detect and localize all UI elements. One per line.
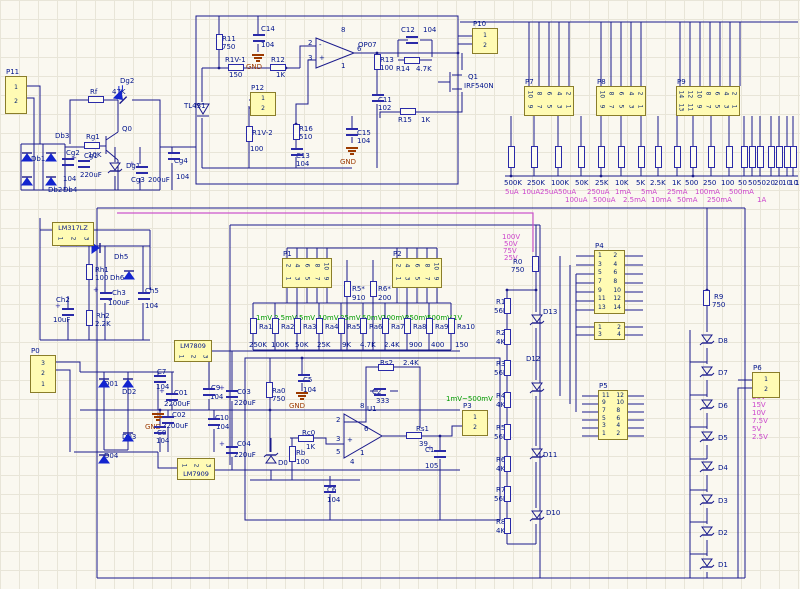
label: Db3 (55, 133, 69, 140)
label: D1 (718, 562, 728, 569)
label: 7.5V (752, 418, 768, 425)
label: 2.2K (95, 321, 111, 328)
label: Rb (296, 450, 305, 457)
connector-pin: 3 (205, 463, 212, 469)
label: 1mA (615, 189, 631, 196)
label: Rh2 (96, 313, 110, 320)
connector-P1: P124681013579 (282, 258, 332, 288)
label: 220uF (234, 400, 256, 407)
capacitor: + (203, 388, 215, 397)
label: 100uF (108, 300, 130, 307)
wire-violet (117, 213, 533, 252)
label: 500uA (593, 197, 616, 204)
connector-pin: 9 (598, 288, 606, 294)
connector-label: P8 (597, 78, 606, 86)
resistor (790, 146, 797, 168)
label: Ra2 (281, 324, 294, 331)
resistor (374, 54, 381, 70)
connector-label: P10 (473, 20, 486, 28)
resistor (749, 146, 756, 168)
connector-pin: 6 (303, 263, 310, 269)
resistor (246, 126, 253, 142)
connector-pin: 2 (190, 354, 197, 360)
label: 50 (748, 180, 757, 187)
diode-icon (42, 148, 60, 164)
label: TL431 (184, 103, 206, 110)
label: D4 (718, 465, 728, 472)
wire-u1 (245, 358, 500, 520)
capacitor: + (253, 34, 265, 43)
connector-pin: 1 (602, 431, 610, 437)
label: R14 (396, 66, 410, 73)
connector-pin: 3 (555, 104, 562, 110)
connector-pin: 4 (722, 91, 729, 97)
label: D02 (122, 389, 136, 396)
connector-P8: P810864297531 (596, 86, 646, 116)
polarity-plus-icon: + (427, 444, 433, 452)
connector-label: P5 (599, 382, 608, 390)
diode-icon (698, 429, 716, 445)
resistor (504, 486, 511, 502)
label: 8 (341, 27, 345, 34)
connector-pin: 1 (284, 276, 291, 282)
resistor (655, 146, 662, 168)
label: 200uF (148, 177, 170, 184)
polarity-plus-icon: + (55, 302, 61, 310)
polarity-plus-icon: + (93, 286, 99, 294)
connector-pin: 1 (14, 85, 18, 91)
resistor (406, 432, 422, 439)
connector-pin: 4 (404, 263, 411, 269)
connector-label: P2 (393, 250, 402, 258)
label: Ra0 (272, 388, 285, 395)
label: 100K (551, 180, 569, 187)
ground-icon (345, 147, 359, 156)
label: 25K (317, 342, 331, 349)
resistor (638, 146, 645, 168)
label: R0 (513, 259, 522, 266)
connector-pin: 5 (617, 104, 624, 110)
label: Ra7 (391, 324, 404, 331)
label: Ra4 (325, 324, 338, 331)
connector-pin: 3 (602, 423, 610, 429)
connector-pin: 1 (261, 96, 265, 102)
resistor (504, 298, 511, 314)
resistor (690, 146, 697, 168)
label: Ra3 (303, 324, 316, 331)
resistor (316, 318, 323, 334)
label: 910 (352, 295, 365, 302)
label: 100 (721, 180, 734, 187)
label: 8 (360, 403, 364, 410)
capacitor: + (208, 418, 220, 427)
resistor (674, 146, 681, 168)
resistor (555, 146, 562, 168)
capacitor: + (154, 375, 166, 384)
diode-icon (120, 266, 138, 282)
connector-pin: 7 (704, 104, 711, 110)
connector-pin: 7 (423, 276, 430, 282)
capacitor: + (324, 485, 336, 494)
label: 1K (421, 117, 430, 124)
label: 10 (795, 180, 800, 187)
connector-pin: 2 (473, 425, 477, 431)
resistor (289, 446, 296, 462)
label: 250K (527, 180, 545, 187)
connector-pin: 14 (678, 91, 685, 97)
label: 5K (636, 180, 645, 187)
connector-pin: 1 (565, 104, 572, 110)
label: Ra8 (413, 324, 426, 331)
label: U1 (367, 406, 377, 413)
connector-pin: 8 (608, 91, 615, 97)
label: 250mA (707, 197, 732, 204)
connector-pin: 9 (433, 276, 440, 282)
connector-pin: 11 (687, 104, 694, 110)
label: 10uF (53, 317, 70, 324)
resistor (86, 264, 93, 280)
label: Ra10 (457, 324, 475, 331)
resistor (88, 96, 104, 103)
label: 100mA (695, 189, 720, 196)
label: 4.7K (416, 66, 432, 73)
connector-pin: 2 (483, 43, 487, 49)
diode-icon (698, 556, 716, 572)
resistor (504, 518, 511, 534)
resistor (703, 290, 710, 306)
resistor (504, 424, 511, 440)
label: R15 (398, 117, 412, 124)
label: 104 (176, 174, 189, 181)
resistor (338, 318, 345, 334)
ground-icon (151, 413, 165, 422)
ground-icon (251, 54, 265, 63)
diode-icon (528, 312, 546, 328)
resistor (726, 146, 733, 168)
connector-pin: 8 (616, 408, 624, 414)
connector-pin: 8 (704, 91, 711, 97)
label: + (319, 55, 325, 62)
label: 10K (615, 180, 629, 187)
label: GND (340, 159, 356, 166)
label: D6 (718, 403, 728, 410)
label: 500K (504, 180, 522, 187)
resistor (757, 146, 764, 168)
label: 102 (378, 105, 391, 112)
resistor (228, 64, 244, 71)
capacitor: + (434, 450, 446, 459)
label: 50uA (558, 189, 576, 196)
resistor (400, 108, 416, 115)
label: 2.5V (752, 434, 768, 441)
resistor (298, 435, 314, 442)
connector-pin: 5 (413, 276, 420, 282)
connector-pin: 9 (526, 104, 533, 110)
connector-P7: P710864297531 (524, 86, 574, 116)
label: 750 (712, 302, 725, 309)
resistor (382, 318, 389, 334)
connector-pin: 2 (616, 431, 624, 437)
connector-P3: P312 (462, 410, 488, 436)
connector-label: P1 (283, 250, 292, 258)
label: 100uA (565, 197, 588, 204)
connector-pin: 13 (598, 305, 606, 311)
connector-pin: 1 (483, 33, 487, 39)
connector-pin: 5 (713, 104, 720, 110)
resistor (508, 146, 515, 168)
connector-pin: 2 (617, 325, 621, 331)
connector-pin: 11 (602, 393, 610, 399)
connector-pin: 7 (313, 276, 320, 282)
label: 150 (455, 342, 468, 349)
label: Q0 (122, 126, 132, 133)
label: 1A (757, 197, 766, 204)
connector-pin: 5 (545, 104, 552, 110)
label: D10 (546, 510, 560, 517)
label: 750 (511, 267, 524, 274)
diode-icon (18, 148, 36, 164)
label: 50K (575, 180, 589, 187)
connector-pin: 6 (413, 263, 420, 269)
connector-label: P7 (525, 78, 534, 86)
connector-pin: 4 (613, 262, 621, 268)
connector-label: P9 (677, 78, 686, 86)
polarity-plus-icon: + (219, 440, 225, 448)
connector-pin: 2 (193, 463, 200, 469)
label: Ra6 (369, 324, 382, 331)
label: 400 (431, 342, 444, 349)
resistor (86, 310, 93, 326)
connector-LM317LZ: LM317LZ123 (52, 222, 94, 246)
connector-pin: 1 (637, 104, 644, 110)
label: Rf (90, 89, 97, 96)
connector-P4: P41357911132468101214 (594, 250, 625, 314)
label: 250K (249, 342, 267, 349)
connector-pin: 8 (423, 263, 430, 269)
connector-pin: 1 (473, 415, 477, 421)
label: 5mA (641, 189, 657, 196)
label: - (347, 419, 350, 426)
label: 1K (276, 72, 285, 79)
resistor (270, 64, 286, 71)
capacitor: + (226, 390, 238, 399)
connector-pin: 1 (178, 354, 185, 360)
diode-icon (119, 428, 137, 444)
diode-icon (18, 172, 36, 188)
label: 250uA (587, 189, 610, 196)
polarity-plus-icon: + (129, 160, 135, 168)
connector-pin: 3 (202, 354, 209, 360)
connector-label: LM317LZ (53, 223, 93, 232)
capacitor: + (100, 292, 112, 301)
label: 10mA (651, 197, 672, 204)
connector-pin: 2 (394, 263, 401, 269)
label: Dg2 (120, 78, 134, 85)
connector-label: LM7809 (175, 341, 211, 350)
resistor (531, 146, 538, 168)
connector-pin: 2 (284, 263, 291, 269)
label: Ra5 (347, 324, 360, 331)
connector-LM7909: LM7909123 (177, 458, 215, 480)
resistor (370, 281, 377, 297)
label: 900 (409, 342, 422, 349)
connector-label: P12 (251, 84, 264, 92)
capacitor: + (346, 128, 358, 137)
resistor (404, 318, 411, 334)
capacitor: + (78, 160, 90, 169)
connector-pin: 6 (616, 416, 624, 422)
label: GND (289, 403, 305, 410)
label: R11 (222, 36, 236, 43)
connector-pin: 2 (261, 106, 265, 112)
connector-label: P11 (6, 68, 19, 76)
connector-pin: 3 (627, 104, 634, 110)
label: 2.4K (384, 342, 400, 349)
diode-icon (698, 332, 716, 348)
capacitor: + (298, 374, 310, 383)
connector-pin: 3 (404, 276, 411, 282)
label: 100 (250, 146, 263, 153)
capacitor: + (62, 308, 74, 317)
connector-pin: 12 (613, 296, 621, 302)
resistor (294, 318, 301, 334)
capacitor: + (406, 36, 418, 45)
connector-pin: 10 (696, 91, 703, 97)
connector-pin: 6 (545, 91, 552, 97)
diode-icon (42, 172, 60, 188)
diode-icon (95, 450, 113, 466)
connector-pin: 3 (83, 236, 90, 242)
diode-icon (698, 364, 716, 380)
connector-pin: 2 (764, 387, 768, 393)
connector-pin: 1 (41, 382, 45, 388)
polarity-plus-icon: + (71, 154, 77, 162)
label: D3 (718, 498, 728, 505)
connector-pin: 1 (731, 104, 738, 110)
label: R1V-2 (252, 130, 273, 137)
diode-icon (698, 524, 716, 540)
resistor (504, 456, 511, 472)
connector-pin: 2 (613, 253, 621, 259)
connector-pin: 10 (616, 400, 624, 406)
label: 100 (380, 65, 393, 72)
resistor (448, 318, 455, 334)
connector-pin: 1 (598, 325, 602, 331)
connector-label: P0 (31, 347, 40, 355)
connector-pin: 9 (602, 400, 610, 406)
label: Ch3 (112, 290, 126, 297)
diode-icon (528, 380, 546, 396)
schematic-canvas: ++++++++++++++++++++++++ (0, 0, 800, 589)
capacitor: + (168, 152, 180, 161)
polarity-plus-icon: + (159, 387, 165, 395)
label: 50 (738, 180, 747, 187)
label: D8 (718, 338, 728, 345)
label: R6* (378, 286, 391, 293)
connector-pin: 2 (565, 91, 572, 97)
connector-P0: P0321 (30, 355, 56, 393)
label: 3 (336, 436, 340, 443)
connector-pin: 12 (616, 393, 624, 399)
label: 104 (63, 176, 76, 183)
label: + (347, 437, 353, 444)
connector-pin: 6 (713, 91, 720, 97)
label: Rg1 (86, 134, 100, 141)
connector-pin: 11 (598, 296, 606, 302)
capacitor: + (136, 166, 148, 175)
connector-pin: 14 (613, 305, 621, 311)
label: Dh5 (114, 254, 128, 261)
label: 6 (364, 426, 368, 433)
resistor (504, 360, 511, 376)
connector-pin: 9 (696, 104, 703, 110)
connector-pin: 2 (637, 91, 644, 97)
connector-P2: P224681013579 (392, 258, 442, 288)
connector-pin: 8 (613, 279, 621, 285)
label: IRF540N (464, 83, 494, 90)
label: 4.7K (360, 342, 376, 349)
resistor (250, 318, 257, 334)
connector-pin: 3 (722, 104, 729, 110)
connector-pin: 5 (602, 416, 610, 422)
label: 750 (222, 44, 235, 51)
label: Db4 (63, 187, 77, 194)
connector-pin: 4 (555, 91, 562, 97)
label: 104 (423, 27, 436, 34)
resistor (378, 364, 394, 371)
capacitor: + (291, 148, 303, 157)
label: 500mA (729, 189, 754, 196)
label: 50mA (677, 197, 698, 204)
resistor (216, 34, 223, 50)
label: 100 (95, 275, 108, 282)
label: 200 (378, 295, 391, 302)
label: 104 (357, 138, 370, 145)
label: C15 (357, 130, 371, 137)
connector-P11: P1112 (5, 76, 27, 114)
capacitor: + (372, 94, 384, 103)
connector-pin: 1 (394, 276, 401, 282)
resistor (618, 146, 625, 168)
label: 25K (595, 180, 609, 187)
label: 1mV (256, 315, 272, 322)
connector-pin: 12 (687, 91, 694, 97)
connector-pin: 4 (294, 263, 301, 269)
label: 1 (341, 63, 345, 70)
connector-label: LM7909 (178, 470, 214, 478)
label: 15V (752, 402, 766, 409)
label: 100 (296, 459, 309, 466)
ground-icon (295, 392, 309, 401)
connector-pin: 7 (598, 279, 606, 285)
connector-pin: 6 (617, 91, 624, 97)
label: R16 (299, 126, 313, 133)
label: 250 (703, 180, 716, 187)
connector-pin: 6 (613, 270, 621, 276)
resistor (504, 392, 511, 408)
label: - (319, 42, 322, 49)
connector-pin: 1 (181, 463, 188, 469)
connector-pin: 2 (14, 99, 18, 105)
connector-pin: 9 (323, 276, 330, 282)
label: R12 (271, 57, 285, 64)
resistor (293, 124, 300, 140)
connector-pin: 3 (41, 361, 45, 367)
label: 105 (425, 463, 438, 470)
label: 500 (685, 180, 698, 187)
label: R9 (714, 294, 723, 301)
label: 2 (308, 40, 312, 47)
